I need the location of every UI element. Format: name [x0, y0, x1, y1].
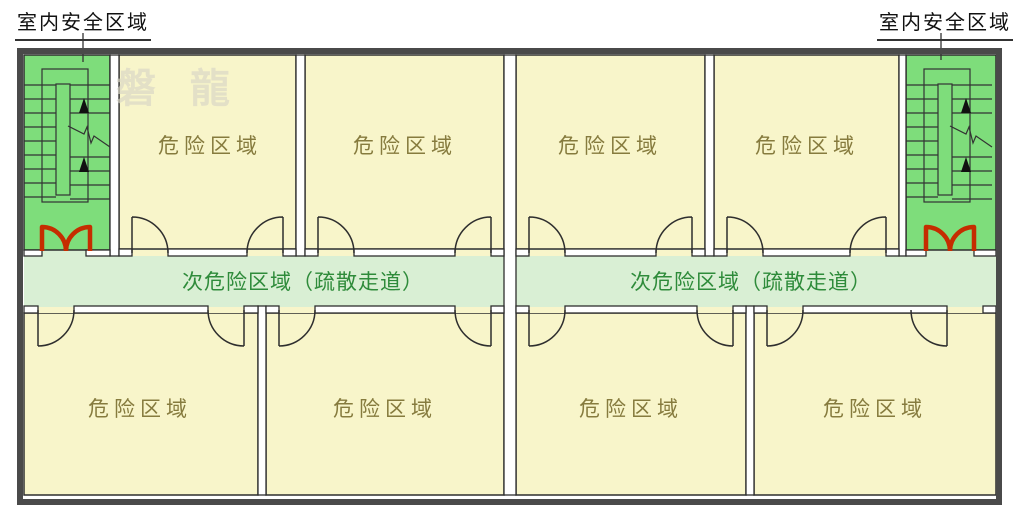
room-bottom-4-label: 危险区域	[823, 393, 927, 423]
wall-room1-room2	[296, 55, 305, 256]
wall-room7-room8	[746, 306, 754, 495]
corridor-label-right: 次危险区域（疏散走道）	[630, 266, 872, 296]
room-bottom-2-label: 危险区域	[333, 393, 437, 423]
wall-center	[504, 55, 516, 495]
wall-room4-stairR	[899, 55, 906, 256]
room-top-2-label: 危险区域	[353, 130, 457, 160]
wall-room3-room4	[705, 55, 714, 256]
wall-room5-room6	[258, 306, 266, 495]
safe-zone-label-right: 室内安全区域	[877, 6, 1013, 41]
corridor-label-left: 次危险区域（疏散走道）	[182, 266, 424, 296]
room-bottom-3-label: 危险区域	[579, 393, 683, 423]
room-top-3-label: 危险区域	[558, 130, 662, 160]
watermark: 磐 龍	[116, 56, 240, 114]
room-top-1-label: 危险区域	[158, 130, 262, 160]
evacuation-floor-plan: 磐 龍 室内安全区域 室内安全区域 次危险区域（疏散走道） 次危险区域（疏散走道…	[0, 0, 1020, 514]
room-bottom-1-label: 危险区域	[88, 393, 192, 423]
room-top-4-label: 危险区域	[755, 130, 859, 160]
safe-zone-label-left: 室内安全区域	[15, 6, 151, 41]
stair-stringer	[56, 84, 70, 195]
